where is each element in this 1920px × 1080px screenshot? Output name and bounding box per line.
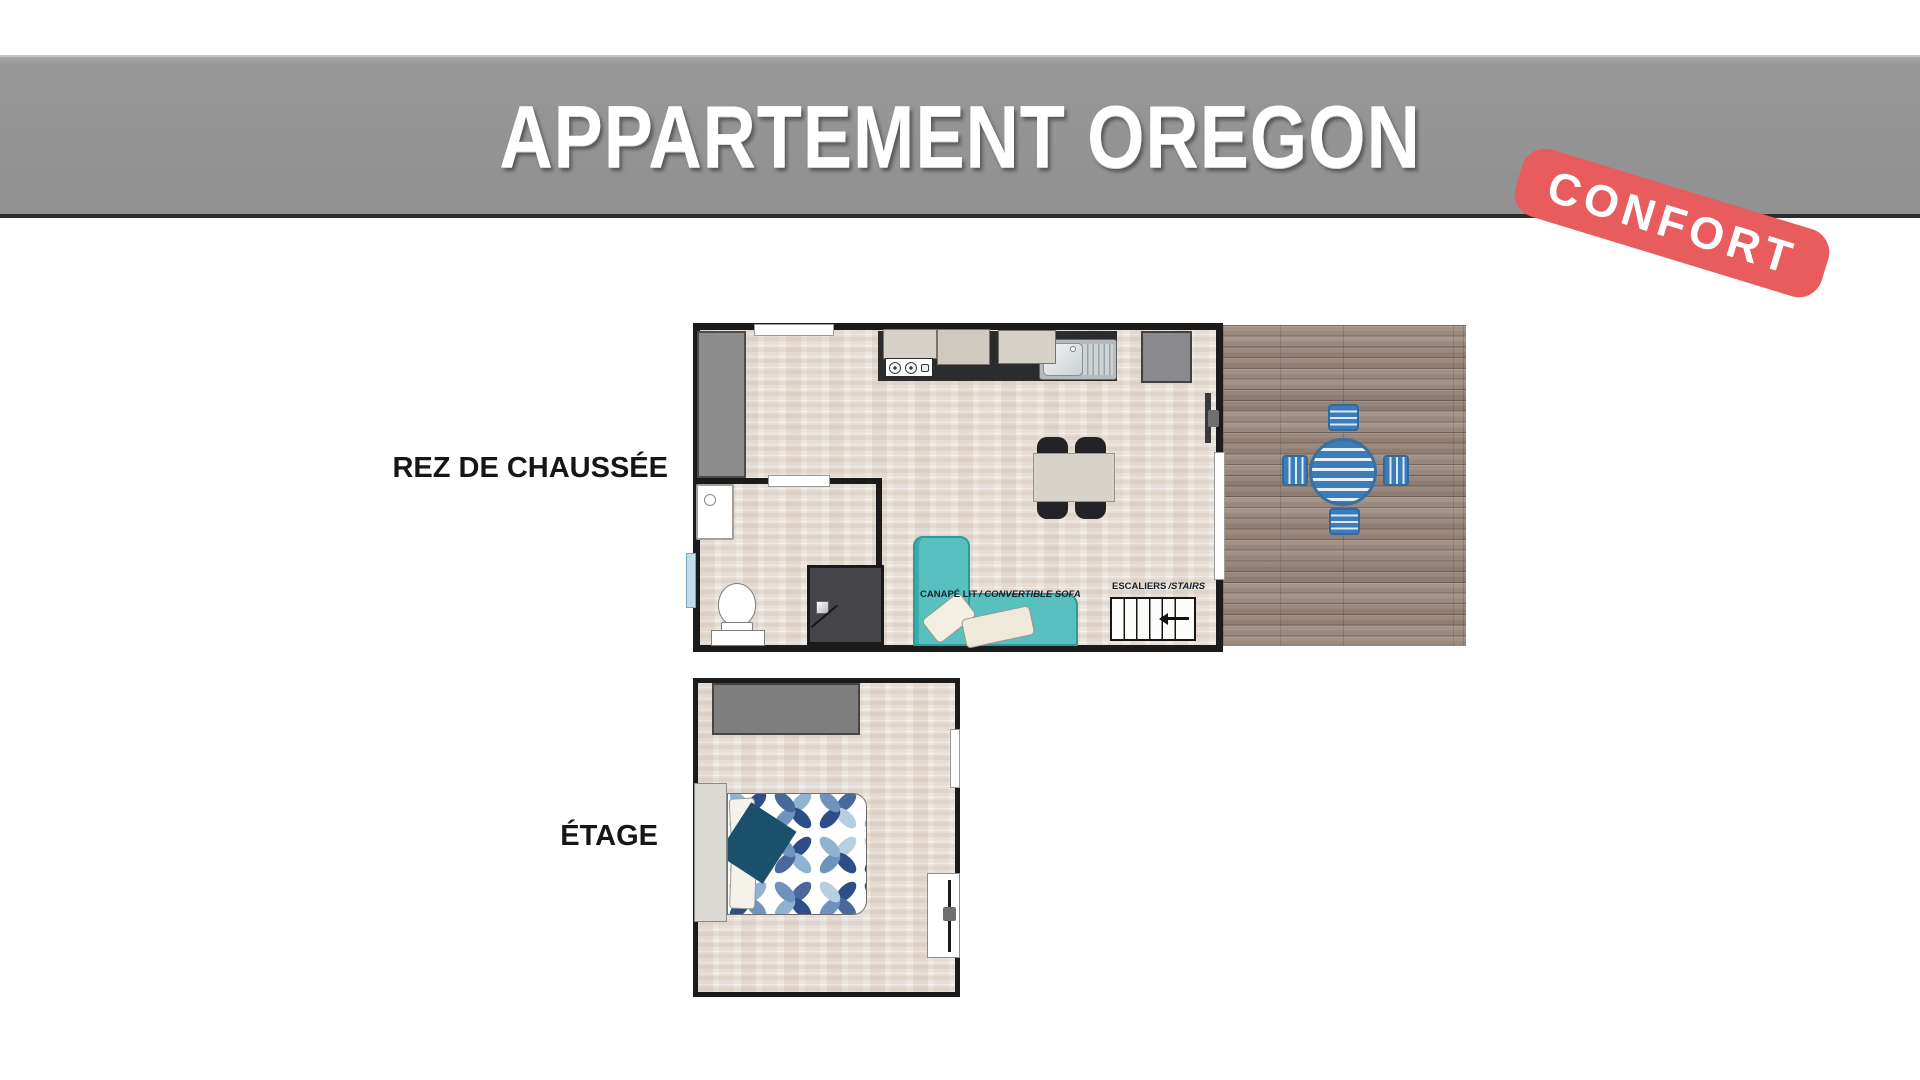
window-icon: [686, 553, 696, 608]
terrace-chair: [1329, 508, 1360, 535]
stairs-direction-arrow-icon: [1161, 617, 1189, 620]
dining-chair: [1037, 499, 1068, 519]
floor-plan-page: APPARTEMENT OREGON CONFORT REZ DE CHAUSS…: [0, 0, 1920, 1080]
dining-table: [1033, 453, 1115, 502]
stairs-icon: [1110, 597, 1196, 641]
upper-floor-label: ÉTAGE: [420, 820, 658, 853]
stairs-label-en: /STAIRS: [1168, 581, 1205, 592]
stairs-label-fr: ESCALIERS: [1112, 581, 1166, 592]
burner-icon: [889, 362, 901, 374]
kitchen-cabinet: [937, 329, 990, 365]
wardrobe: [712, 683, 860, 735]
terrace-table: [1309, 438, 1377, 506]
door-icon: [927, 873, 960, 958]
sofa-label: CANAPÉ LIT/ CONVERTIBLE SOFA: [920, 589, 1081, 600]
window-icon: [950, 729, 960, 788]
dining-chair: [1075, 499, 1106, 519]
bathroom-sink-icon: [696, 484, 734, 540]
toilet-icon: [718, 583, 756, 626]
bed-headboard: [694, 783, 727, 922]
sink-drain: [1070, 346, 1076, 352]
door-opening-icon: [1214, 452, 1225, 580]
toilet-seat: [721, 622, 753, 631]
window-icon: [754, 324, 834, 336]
toilet-base: [711, 630, 765, 646]
terrace-chair: [1383, 455, 1409, 486]
shower-icon: [807, 565, 884, 645]
door-handle-icon: [1208, 410, 1219, 427]
bed: .p1{fill:var(--a)} .p2{fill:var(--b)} .p…: [727, 793, 867, 915]
burner-icon: [905, 362, 917, 374]
stairs-label: ESCALIERS/STAIRS: [1112, 581, 1205, 592]
sofa-label-en: / CONVERTIBLE SOFA: [979, 589, 1081, 600]
ground-floor-label: REZ DE CHAUSSÉE: [300, 452, 668, 485]
sofa-label-fr: CANAPÉ LIT: [920, 589, 977, 600]
door-opening-icon: [768, 475, 830, 487]
kitchen-cabinet: [883, 329, 937, 359]
terrace-chair: [1328, 404, 1359, 431]
stove-icon: [885, 358, 933, 377]
fridge: [1141, 331, 1192, 383]
kitchen-cabinet: [998, 330, 1056, 364]
wardrobe: [697, 331, 746, 478]
burner-icon: [921, 364, 929, 372]
door-handle-icon: [943, 907, 956, 921]
sink-drainer: [1083, 344, 1113, 375]
terrace-chair: [1282, 455, 1308, 486]
shower-head-icon: [816, 601, 829, 614]
